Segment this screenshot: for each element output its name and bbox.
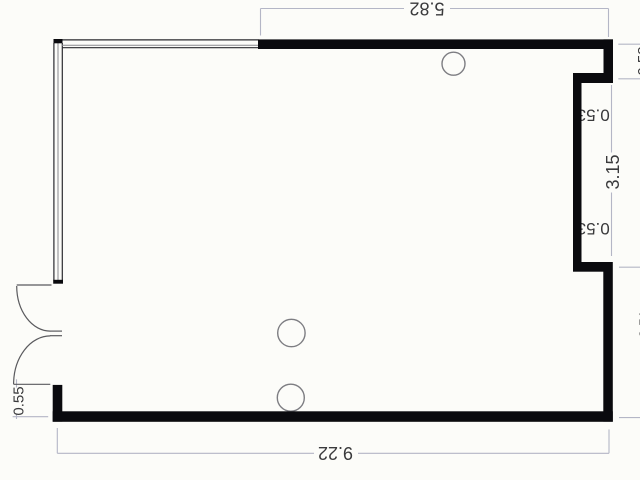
svg-text:0.58: 0.58: [635, 46, 640, 75]
svg-text:3.15: 3.15: [603, 154, 623, 189]
svg-text:0.53: 0.53: [577, 219, 610, 238]
svg-text:0.55: 0.55: [11, 386, 28, 415]
svg-text:2.51: 2.51: [636, 310, 640, 337]
svg-text:9.22: 9.22: [318, 443, 353, 463]
svg-text:5.82: 5.82: [409, 0, 444, 18]
svg-text:0.53: 0.53: [577, 106, 610, 125]
